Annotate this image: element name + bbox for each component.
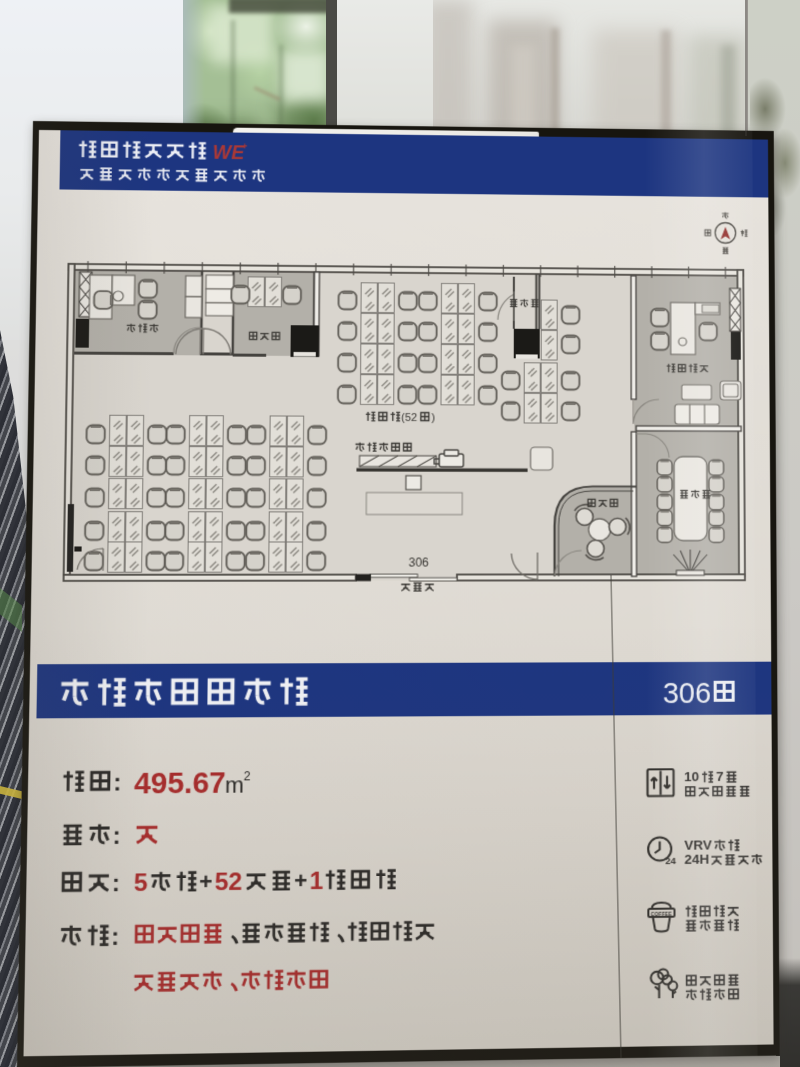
svg-text:7: 7: [716, 769, 724, 784]
svg-text::: :: [112, 870, 120, 897]
svg-text:COFFEE: COFFEE: [651, 912, 673, 918]
svg-text:24H: 24H: [684, 852, 709, 867]
svg-text:WE: WE: [212, 142, 245, 164]
svg-text:(52: (52: [401, 412, 417, 424]
svg-text::: :: [112, 822, 120, 849]
svg-text:10: 10: [684, 770, 699, 785]
svg-text::: :: [113, 769, 121, 796]
svg-text:+: +: [242, 141, 248, 151]
svg-text:2: 2: [244, 769, 251, 783]
svg-text:52: 52: [215, 868, 243, 896]
svg-text:495.67: 495.67: [134, 767, 226, 800]
svg-text:1: 1: [309, 868, 323, 896]
svg-text:VRV: VRV: [684, 838, 712, 853]
svg-text:306: 306: [663, 678, 711, 710]
svg-text:306: 306: [408, 556, 429, 570]
svg-text:+: +: [294, 868, 307, 894]
svg-text:+: +: [199, 869, 213, 895]
svg-text:5: 5: [134, 869, 148, 897]
svg-text:): ): [431, 412, 435, 424]
svg-text:m: m: [225, 772, 244, 798]
svg-text:24: 24: [665, 856, 676, 867]
svg-text::: :: [111, 923, 119, 950]
